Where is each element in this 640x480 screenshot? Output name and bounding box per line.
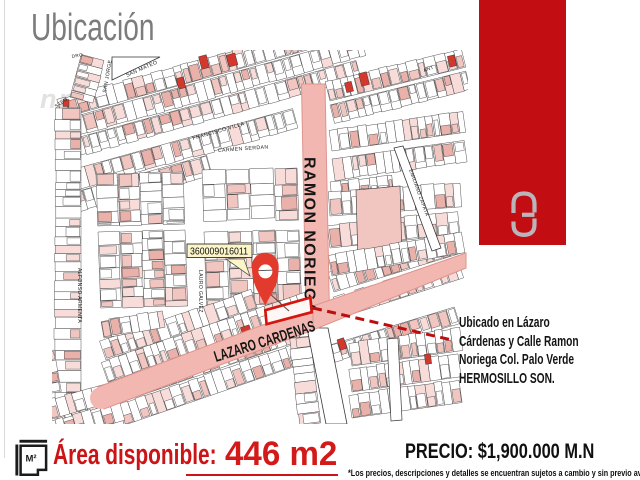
svg-text:M²: M² (26, 454, 37, 465)
svg-text:RAMON NORIEGA: RAMON NORIEGA (301, 157, 318, 315)
svg-text:LAURO GALVEZ: LAURO GALVEZ (197, 270, 203, 313)
svg-text:360009016011: 360009016011 (190, 247, 248, 258)
svg-text:ALFONSO ARMENTA: ALFONSO ARMENTA (76, 268, 82, 323)
